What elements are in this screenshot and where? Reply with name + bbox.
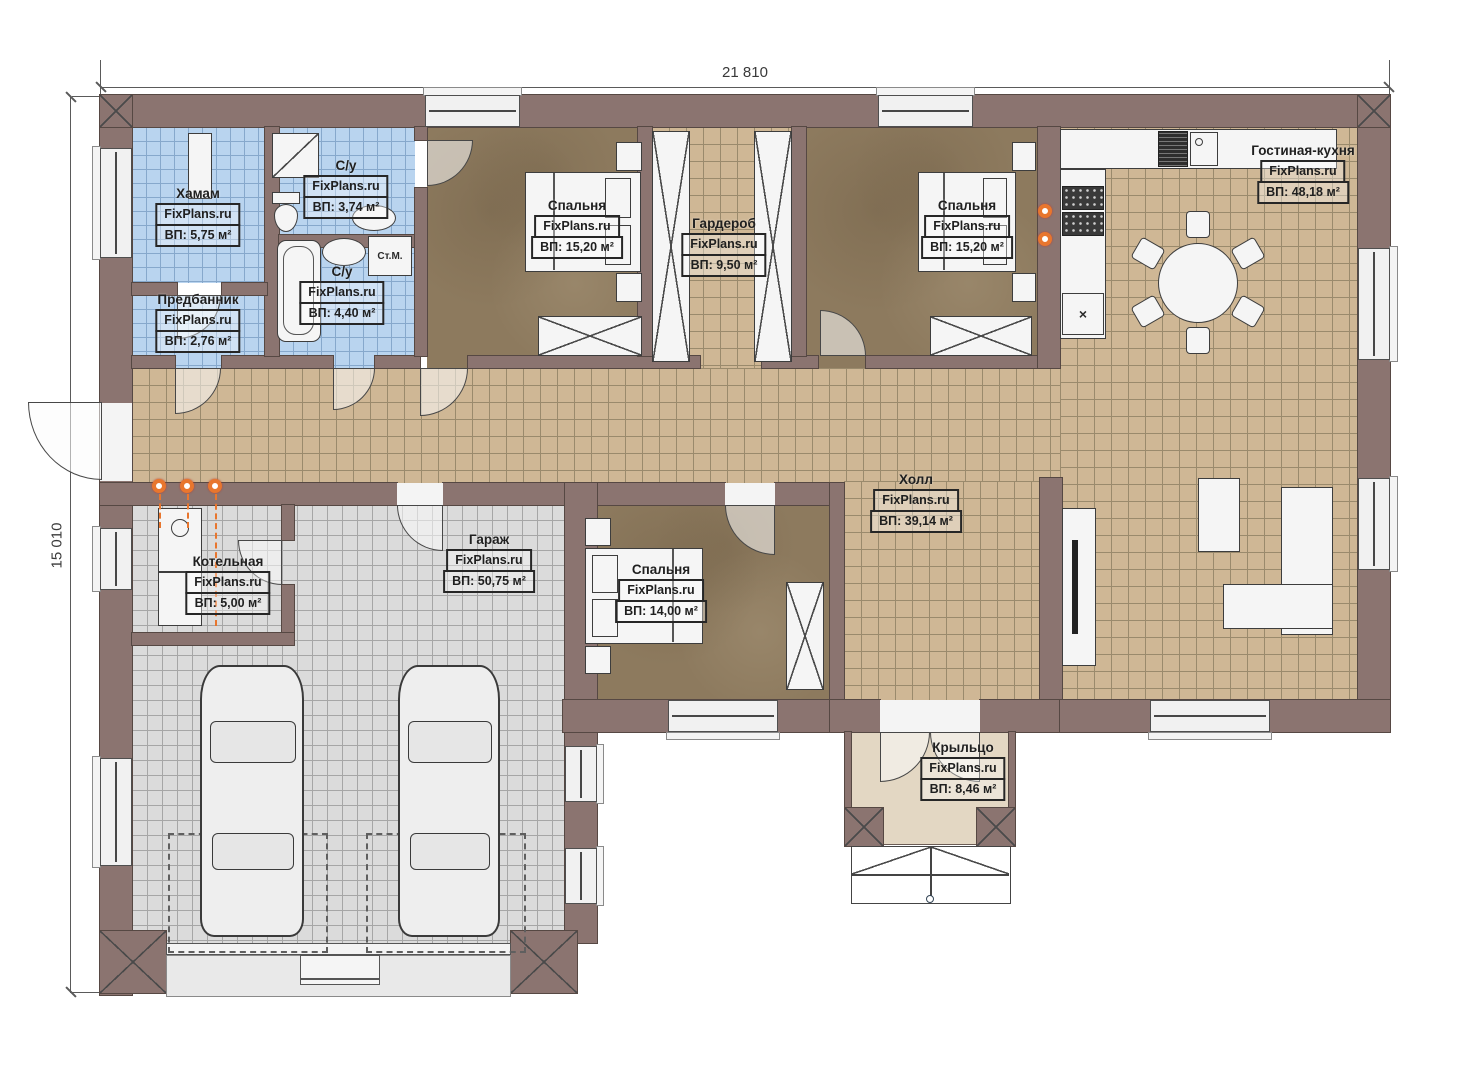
room-area: ВП: 2,76 м² <box>156 330 241 353</box>
room-name: Котельная <box>193 554 264 569</box>
gas-valve-icon <box>1038 232 1052 246</box>
nightstand <box>1012 142 1036 171</box>
closet <box>786 582 824 690</box>
wall-segment <box>100 483 397 505</box>
window-pane <box>115 532 117 586</box>
window-pane <box>1154 715 1266 717</box>
room-site: FixPlans.ru <box>920 757 1005 780</box>
dimension-width-label: 21 810 <box>645 64 845 81</box>
porch-door-opening <box>880 700 980 732</box>
dining-table <box>1158 243 1238 323</box>
dish-rack-icon <box>1158 131 1188 167</box>
console-table <box>1198 478 1240 552</box>
room-label-porch: Крыльцо FixPlans.ru ВП: 8,46 м² <box>920 740 1005 801</box>
window-sill <box>596 744 604 804</box>
room-name: Предбанник <box>157 292 238 307</box>
room-area: ВП: 9,50 м² <box>682 254 767 277</box>
nightstand <box>1012 273 1036 302</box>
room-area: ВП: 15,20 м² <box>531 236 623 259</box>
room-area: ВП: 39,14 м² <box>870 510 962 533</box>
room-site: FixPlans.ru <box>1260 160 1345 183</box>
window-pane <box>115 762 117 862</box>
dimension-line-top <box>100 87 1390 88</box>
car <box>200 665 304 937</box>
room-name: Хамам <box>176 186 220 201</box>
window <box>565 746 597 802</box>
window <box>878 95 973 127</box>
toilet-tank <box>272 192 300 204</box>
wall-segment <box>866 356 1038 368</box>
window-pane <box>115 152 117 254</box>
porch-steps-marker <box>926 895 934 903</box>
room-area: ВП: 5,00 м² <box>186 592 271 615</box>
nightstand <box>585 646 611 674</box>
car-windshield <box>210 721 296 763</box>
closet <box>930 316 1032 356</box>
wall-segment <box>222 356 333 368</box>
tv-unit <box>1062 508 1096 666</box>
window-pane <box>580 750 582 798</box>
sink-icon <box>322 238 366 266</box>
room-label-bedroom1: Спальня FixPlans.ru ВП: 15,20 м² <box>531 198 623 259</box>
chair <box>1186 211 1210 238</box>
porch-side-wall <box>1009 732 1015 810</box>
window <box>100 148 132 258</box>
room-label-wc1: С/у FixPlans.ru ВП: 3,74 м² <box>303 158 388 219</box>
room-label-boiler: Котельная FixPlans.ru ВП: 5,00 м² <box>185 554 270 615</box>
oven-icon <box>1062 212 1104 236</box>
room-name: С/у <box>335 158 356 173</box>
window <box>100 758 132 866</box>
wall-hall-living-stub <box>1040 478 1062 732</box>
window <box>1150 700 1270 732</box>
wall-corner-hatch <box>100 95 132 127</box>
room-area: ВП: 3,74 м² <box>304 196 389 219</box>
wall-wc-bedroom1 <box>415 188 427 356</box>
car-rear-window <box>212 833 294 870</box>
wall-bedroom2-kitchen <box>1038 127 1060 368</box>
room-name: Крыльцо <box>932 740 993 755</box>
room-name: Гостиная-кухня <box>1251 143 1354 158</box>
dimension-tick <box>65 91 76 102</box>
room-label-garage: Гараж FixPlans.ru ВП: 50,75 м² <box>443 532 535 593</box>
window <box>1358 248 1390 360</box>
gas-valve-icon <box>208 479 222 493</box>
wall-segment <box>132 356 175 368</box>
car <box>398 665 500 937</box>
window-sill <box>666 732 780 740</box>
wall-wc-bedroom1 <box>415 127 427 140</box>
fridge: × <box>1062 293 1104 335</box>
window <box>1358 478 1390 570</box>
dimension-height-label: 15 010 <box>49 486 66 606</box>
wall-porch-left <box>830 700 880 732</box>
room-label-bedroom2: Спальня FixPlans.ru ВП: 15,20 м² <box>921 198 1013 259</box>
kitchen-sink <box>1190 132 1218 166</box>
floor-plan-canvas: 21 810 15 010 <box>0 0 1473 1080</box>
fridge-mark: × <box>1063 294 1103 334</box>
nightstand <box>616 142 642 171</box>
wall-top <box>100 95 1390 127</box>
room-site: FixPlans.ru <box>681 233 766 256</box>
window-sill <box>1148 732 1272 740</box>
dimension-ext-line <box>72 992 102 993</box>
pillow <box>592 599 618 637</box>
gas-valve-icon <box>1038 204 1052 218</box>
garage-step-line <box>301 978 379 980</box>
porch-side-wall <box>845 732 851 810</box>
room-name: Холл <box>899 472 933 487</box>
room-site: FixPlans.ru <box>534 215 619 238</box>
bedroom3-door-opening <box>725 483 775 505</box>
porch-steps-diagonal <box>931 847 1009 874</box>
porch-steps-centerline <box>930 847 932 902</box>
wall-bedroom3-hall <box>830 483 844 732</box>
room-area: ВП: 4,40 м² <box>300 302 385 325</box>
room-site: FixPlans.ru <box>155 203 240 226</box>
room-label-wc2: С/у FixPlans.ru ВП: 4,40 м² <box>299 264 384 325</box>
sofa-seat <box>1223 584 1333 629</box>
closet <box>538 316 642 356</box>
garage-step <box>300 955 380 985</box>
room-site: FixPlans.ru <box>924 215 1009 238</box>
window-pane <box>1373 252 1375 356</box>
window-sill <box>596 846 604 906</box>
room-site: FixPlans.ru <box>185 571 270 594</box>
window-pane <box>1373 482 1375 566</box>
room-label-bedroom3: Спальня FixPlans.ru ВП: 14,00 м² <box>615 562 707 623</box>
room-area: ВП: 14,00 м² <box>615 600 707 623</box>
room-site: FixPlans.ru <box>303 175 388 198</box>
pillow <box>592 555 618 593</box>
wall-corner-hatch <box>1358 95 1390 127</box>
wall-porch-right <box>980 700 1060 732</box>
tv-icon <box>1072 540 1078 634</box>
window <box>668 700 778 732</box>
room-label-entry: Предбанник FixPlans.ru ВП: 2,76 м² <box>155 292 240 353</box>
room-name: Спальня <box>632 562 690 577</box>
room-area: ВП: 5,75 м² <box>156 224 241 247</box>
room-area: ВП: 15,20 м² <box>921 236 1013 259</box>
room-label-wardrobe: Гардероб FixPlans.ru ВП: 9,50 м² <box>681 216 766 277</box>
wall-garage-corner <box>100 931 166 993</box>
window <box>100 528 132 590</box>
wall-boiler <box>282 505 294 540</box>
faucet-icon <box>1195 138 1203 146</box>
room-name: Спальня <box>548 198 606 213</box>
room-name: Гараж <box>469 532 509 547</box>
entrance-door-arc <box>28 402 102 480</box>
room-area: ВП: 8,46 м² <box>921 778 1006 801</box>
porch-column <box>977 808 1015 846</box>
gas-line <box>187 494 189 528</box>
window-sill <box>1389 246 1398 362</box>
dimension-ext-line <box>1389 60 1390 94</box>
room-site: FixPlans.ru <box>155 309 240 332</box>
room-site: FixPlans.ru <box>618 579 703 602</box>
porch-column <box>845 808 883 846</box>
stove-icon <box>1062 186 1104 210</box>
window-pane <box>672 715 774 717</box>
room-area: ВП: 50,75 м² <box>443 570 535 593</box>
room-area: ВП: 48,18 м² <box>1257 181 1349 204</box>
window <box>425 95 520 127</box>
dimension-line-left <box>70 97 71 993</box>
gas-line <box>159 494 161 528</box>
window-pane <box>429 110 516 112</box>
wall-right <box>1358 95 1390 732</box>
dimension-ext-line <box>72 96 102 97</box>
room-name: Гардероб <box>692 216 756 231</box>
wall-boiler-bottom <box>132 633 294 645</box>
room-label-hall: Холл FixPlans.ru ВП: 39,14 м² <box>870 472 962 533</box>
nightstand <box>616 273 642 302</box>
car-windshield <box>408 721 492 763</box>
dimension-ext-line <box>100 60 101 94</box>
nightstand <box>585 518 611 546</box>
window <box>565 848 597 904</box>
room-site: FixPlans.ru <box>873 489 958 512</box>
chair <box>1186 327 1210 354</box>
room-name: Спальня <box>938 198 996 213</box>
room-name: С/у <box>331 264 352 279</box>
wall-segment <box>375 356 420 368</box>
porch-steps-diagonal <box>852 847 931 874</box>
gas-valve-icon <box>180 479 194 493</box>
wall-wardrobe-bedroom2 <box>792 127 806 356</box>
window-sill <box>1389 476 1398 572</box>
window-pane <box>882 110 969 112</box>
room-hall-corridor-floor <box>132 368 1060 483</box>
room-label-living-kitchen: Гостиная-кухня FixPlans.ru ВП: 48,18 м² <box>1251 143 1354 204</box>
room-label-hamam: Хамам FixPlans.ru ВП: 5,75 м² <box>155 186 240 247</box>
entrance-door-opening <box>100 403 132 481</box>
room-site: FixPlans.ru <box>446 549 531 572</box>
window-pane <box>580 852 582 900</box>
car-rear-window <box>410 833 490 870</box>
gas-valve-icon <box>152 479 166 493</box>
garage-door-opening <box>397 483 443 505</box>
porch-steps <box>851 846 1011 904</box>
room-site: FixPlans.ru <box>299 281 384 304</box>
